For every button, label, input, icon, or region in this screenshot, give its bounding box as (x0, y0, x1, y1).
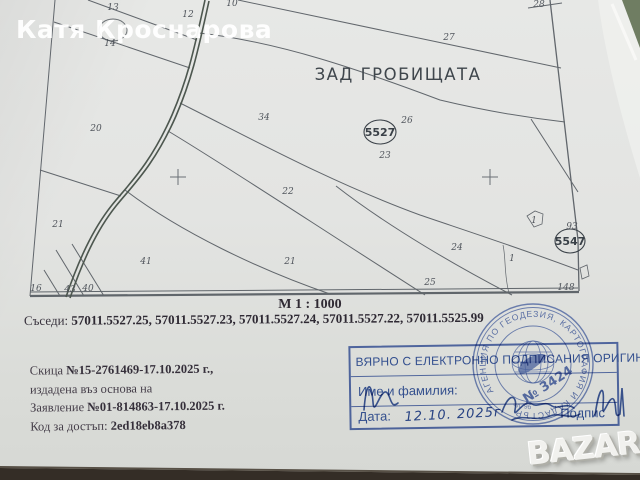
neighbors-values: 57011.5527.25, 57011.5527.23, 57011.5527… (71, 310, 484, 328)
name-label: Име и фамилия: (358, 382, 458, 399)
photographed-cadastral-sketch: ЗАД ГРОБИЩАТА М 1 : 1000 131412102728203… (0, 0, 640, 480)
parcel-label-24: 24 (450, 243, 463, 253)
parcel-label-1: 1 (509, 254, 515, 264)
road-lines (66, 0, 209, 298)
parcel-label-41: 41 (139, 257, 151, 267)
date-label: Дата: (358, 408, 391, 424)
access-code-label: Код за достъп: (30, 418, 107, 433)
parcel-label-34: 34 (258, 113, 270, 123)
neighbors-label: Съседи: (24, 313, 68, 328)
quarter-label-5527: 5527 (365, 126, 396, 139)
parcel-label-20: 20 (89, 124, 102, 134)
parcel-label-21: 21 (51, 220, 63, 230)
parcel-label-16: 16 (30, 284, 42, 294)
parcel-label-148: 148 (557, 283, 574, 293)
map-frame-left (30, 0, 55, 296)
quarter-label-5547: 5547 (555, 235, 586, 248)
parcel-label-10: 10 (226, 0, 238, 9)
parcel-label-40: 40 (81, 284, 94, 294)
parcel-number-labels: 1314121027282034262322214121242511931481… (30, 0, 578, 295)
parcel-label-43: 43 (63, 285, 76, 295)
application-number: №01-814863-17.10.2025 г. (87, 399, 225, 414)
grid-cross-marks (170, 169, 498, 185)
access-code-value: 2ed18eb8a378 (111, 417, 186, 432)
sketch-label: Скица (30, 363, 63, 377)
parcel-label-13: 13 (107, 3, 119, 13)
owner-watermark: Катя Кроснарова (16, 15, 272, 44)
globe-landmass (518, 354, 546, 374)
application-label: Заявление (30, 400, 84, 415)
parcel-label-26: 26 (400, 116, 413, 126)
parcel-label-21: 21 (283, 257, 295, 267)
sketch-number: №15-2761469-17.10.2025 г., (66, 362, 213, 378)
parcel-label-25: 25 (423, 278, 436, 288)
map-frame-bottom-thin (30, 288, 578, 292)
access-code-line: Код за достъп: 2ed18eb8a378 (30, 414, 340, 436)
parcel-label-28: 28 (532, 0, 545, 10)
parcel-label-1: 1 (531, 216, 537, 226)
round-agency-stamp: АГЕНЦИЯ ПО ГЕОДЕЗИЯ, КАРТОГРАФИЯ И КАДАС… (452, 296, 617, 436)
document-info-block: Скица №15-2761469-17.10.2025 г., издаден… (30, 358, 341, 435)
parcel-label-22: 22 (281, 187, 294, 197)
map-scale: М 1 : 1000 (278, 297, 341, 312)
map-area-title: ЗАД ГРОБИЩАТА (315, 65, 482, 84)
parcel-label-23: 23 (378, 151, 391, 161)
parcel-label-27: 27 (442, 33, 455, 43)
